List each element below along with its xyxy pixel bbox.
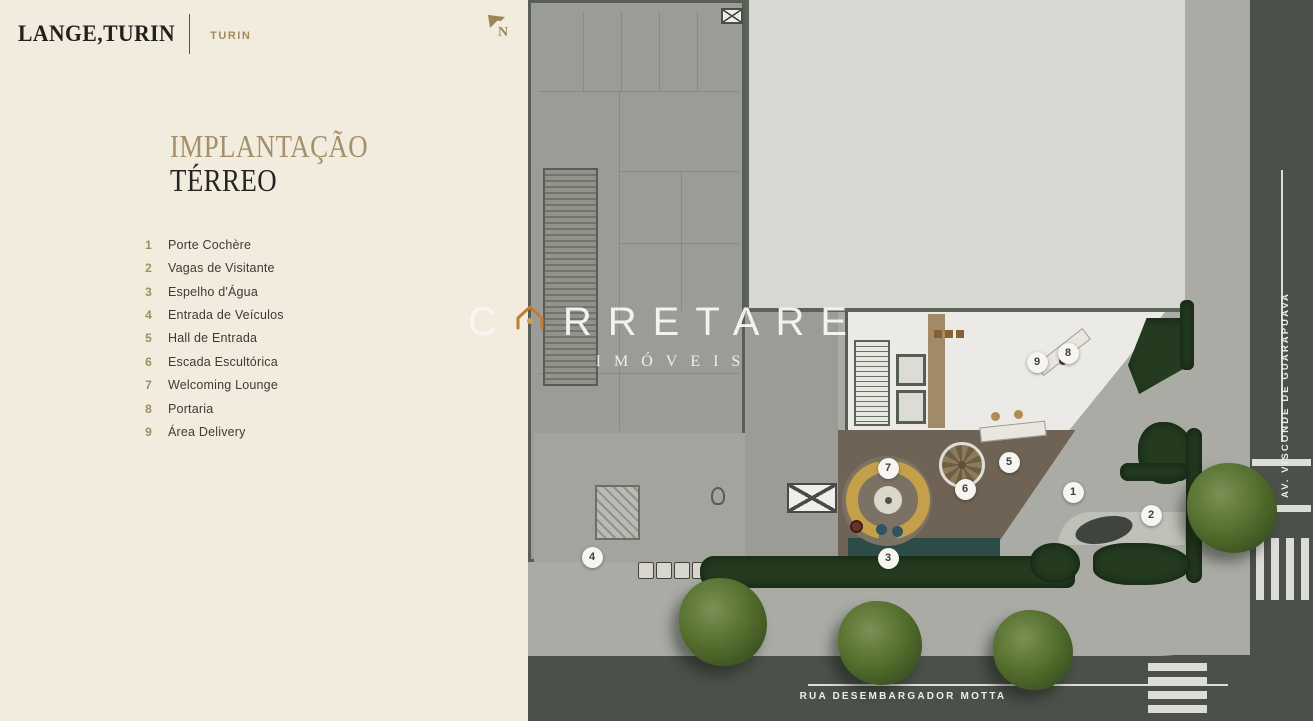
stool — [1014, 410, 1023, 419]
legend-number: 6 — [141, 355, 156, 369]
legend-list: 1Porte Cochère2Vagas de Visitante3Espelh… — [141, 238, 528, 439]
fire-pit — [850, 520, 863, 533]
crosswalk-stripe — [1271, 538, 1279, 600]
legend-label: Vagas de Visitante — [168, 261, 275, 275]
shaft-box — [721, 8, 743, 24]
bush — [1093, 543, 1191, 585]
vehicle-ramp — [543, 168, 598, 386]
elevator-shaft — [896, 390, 926, 424]
legend-label: Escada Escultórica — [168, 355, 278, 369]
pouf — [876, 524, 887, 535]
title-terreo: TÉRREO — [170, 164, 471, 198]
bush — [1030, 543, 1080, 583]
tree — [679, 578, 767, 666]
street-label-av-visconde-de-guarapuava: AV. VISCONDE DE GUARAPUAVA — [1280, 225, 1291, 565]
lounge-table — [874, 486, 902, 514]
building-left-wing — [528, 0, 745, 562]
tree — [993, 610, 1073, 690]
legend-item-3: 3Espelho d'Água — [141, 285, 528, 299]
elevator-shaft — [896, 354, 926, 386]
legend-item-8: 8Portaria — [141, 402, 528, 416]
planting-strip — [1180, 300, 1194, 370]
plan-marker-2: 2 — [1141, 505, 1162, 526]
legend-label: Entrada de Veículos — [168, 308, 284, 322]
legend-label: Hall de Entrada — [168, 331, 257, 345]
plan-marker-5: 5 — [999, 452, 1020, 473]
legend-label: Espelho d'Água — [168, 285, 258, 299]
legend-item-5: 5Hall de Entrada — [141, 331, 528, 345]
cabinet — [934, 330, 942, 338]
legend-item-9: 9Área Delivery — [141, 425, 528, 439]
legend-label: Porte Cochère — [168, 238, 251, 252]
stool — [991, 412, 1000, 421]
cabinet — [945, 330, 953, 338]
brand-tag: TURIN — [210, 26, 251, 42]
legend-number: 2 — [141, 261, 156, 275]
plan-marker-4: 4 — [582, 547, 603, 568]
legend-number: 9 — [141, 425, 156, 439]
page: LANGE,TURIN TURIN IMPLANTAÇÃO TÉRREO 1Po… — [0, 0, 1313, 721]
legend-item-4: 4Entrada de Veículos — [141, 308, 528, 322]
building-mid-block — [745, 312, 838, 562]
tree — [1187, 463, 1277, 553]
elevator-box — [787, 483, 837, 513]
crosswalk-stripe — [1148, 663, 1207, 671]
plan-marker-6: 6 — [955, 479, 976, 500]
legend-item-1: 1Porte Cochère — [141, 238, 528, 252]
pouf — [892, 526, 903, 537]
gate-slat — [674, 562, 690, 579]
legend-label: Área Delivery — [168, 425, 246, 439]
hatched-area — [595, 485, 640, 540]
tree — [838, 601, 922, 685]
plan-marker-7: 7 — [878, 458, 899, 479]
legend-item-2: 2Vagas de Visitante — [141, 261, 528, 275]
legend-number: 7 — [141, 378, 156, 392]
service-fixture — [711, 487, 725, 505]
tower-slab — [745, 0, 1185, 312]
brand-divider — [189, 14, 190, 54]
stair-run — [854, 340, 890, 426]
legend-number: 1 — [141, 238, 156, 252]
legend-number: 3 — [141, 285, 156, 299]
legend-item-7: 7Welcoming Lounge — [141, 378, 528, 392]
plan-marker-8: 8 — [1058, 343, 1079, 364]
legend-number: 5 — [141, 331, 156, 345]
north-label: N — [498, 25, 508, 41]
legend-item-6: 6Escada Escultórica — [141, 355, 528, 369]
page-title: IMPLANTAÇÃO TÉRREO — [170, 130, 528, 198]
crosswalk-stripe — [1148, 705, 1207, 713]
legend-label: Portaria — [168, 402, 213, 416]
plan-marker-3: 3 — [878, 548, 899, 569]
plan-marker-9: 9 — [1027, 352, 1048, 373]
crosswalk-stripe — [1148, 691, 1207, 699]
logo-lange-turin: LANGE,TURIN — [18, 21, 175, 47]
street-label-rua-desembargador-motta: RUA DESEMBARGADOR MOTTA — [778, 691, 1028, 702]
hedge-horizontal — [1120, 463, 1188, 481]
crosswalk-stripe — [1256, 538, 1264, 600]
legend-number: 4 — [141, 308, 156, 322]
gate-slat — [638, 562, 654, 579]
title-implantacao: IMPLANTAÇÃO — [170, 130, 471, 164]
legend-number: 8 — [141, 402, 156, 416]
site-plan: RUA DESEMBARGADOR MOTTA AV. VISCONDE DE … — [528, 0, 1313, 721]
sidebar: LANGE,TURIN TURIN IMPLANTAÇÃO TÉRREO 1Po… — [0, 0, 528, 721]
gate-slat — [656, 562, 672, 579]
crosswalk-stripe — [1301, 538, 1309, 600]
brand-header: LANGE,TURIN TURIN — [0, 0, 528, 56]
cabinet — [956, 330, 964, 338]
legend-label: Welcoming Lounge — [168, 378, 278, 392]
north-indicator: N — [485, 12, 519, 46]
plan-marker-1: 1 — [1063, 482, 1084, 503]
